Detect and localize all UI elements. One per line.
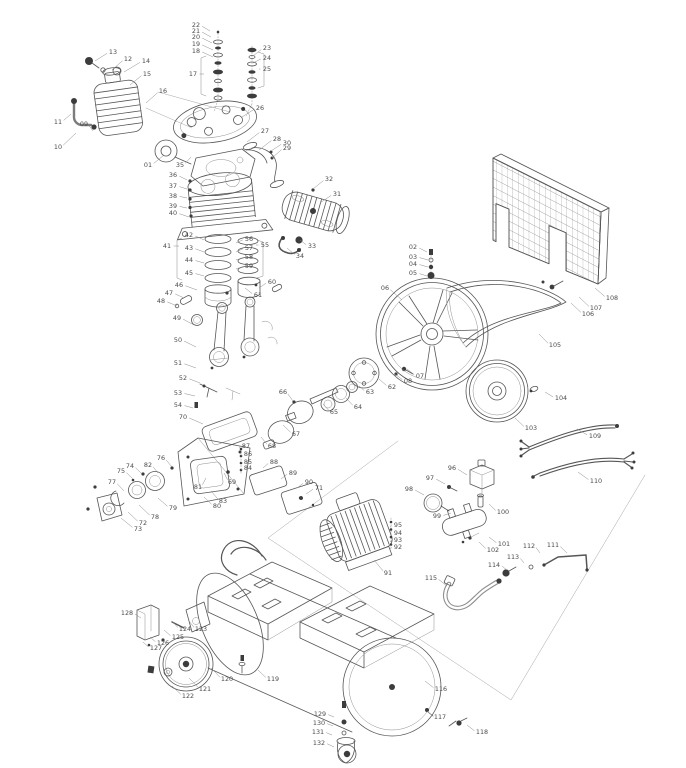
leader-line [180,206,187,208]
part-number-label: 88 [270,458,278,466]
part-number-label: 71 [315,484,323,492]
part-number-label: 121 [199,685,211,693]
valve-stacks [213,30,257,116]
power-cords [520,424,636,479]
leader-line [258,670,266,677]
part-number-label: 36 [169,171,177,179]
leader-line [63,133,76,145]
drive-belt [446,280,566,347]
leader-line [239,447,240,448]
part-number-label: 12 [124,55,132,63]
leader-line [166,460,172,467]
leader-line [578,472,588,480]
leader-line [195,261,204,263]
part-number-label: 132 [313,739,325,747]
part-number-label: 91 [384,569,392,577]
piston-and-rings-left [175,235,231,308]
leader-line [272,150,282,158]
part-number-label: 28 [273,135,281,143]
assembly-reference-lines [146,92,645,700]
leader-line [560,546,567,553]
leader-line [479,542,486,549]
fin-wall [493,154,609,289]
part-number-label: 94 [394,529,402,537]
part-number-label: 131 [312,728,324,736]
leader-line [117,484,124,491]
part-number-label: 113 [507,553,519,561]
part-number-label: 93 [394,536,402,544]
part-number-label: 14 [142,57,150,65]
part-number-label: 07 [416,372,424,380]
part-number-label: 90 [305,478,313,486]
part-number-label: 82 [144,461,152,469]
leader-line [407,369,414,375]
part-number-label: 09 [80,120,88,128]
part-number-label: 17 [189,70,197,78]
part-number-label: 69 [228,478,236,486]
leader-line [202,478,206,485]
unloader-valve [155,140,191,164]
leader-line [154,156,163,163]
part-number-label: 41 [163,242,171,250]
part-number-label: 49 [173,314,181,322]
leader-line [259,141,271,150]
part-number-label: 76 [157,454,165,462]
part-number-label: 51 [174,359,182,367]
part-number-label: 54 [174,401,182,409]
part-number-label: 99 [433,512,441,520]
part-number-label: 16 [159,87,167,95]
leader-line [443,513,451,515]
part-number-label: 61 [254,291,262,299]
leader-line [346,398,353,405]
leader-line [167,302,177,306]
leader-line [545,392,553,397]
leader-line [189,418,203,424]
cylinder-block [171,168,273,240]
crankshaft [253,358,413,450]
part-number-label: 116 [435,685,447,693]
part-number-label: 110 [590,477,602,485]
leader-line [135,614,141,618]
part-number-label: 57 [245,244,253,252]
part-number-label: 128 [121,609,133,617]
leader-line [439,579,447,586]
part-number-label: 01 [144,161,152,169]
leader-line [195,274,204,276]
part-number-label: 123 [195,625,207,633]
leader-line [146,93,158,103]
part-number-label: 05 [409,269,417,277]
part-number-label: 115 [425,574,437,582]
diagram-canvas: 0102030405060708091011121314151617181920… [0,0,686,768]
leader-line [253,59,261,63]
part-number-label: 75 [117,467,125,475]
part-number-label: 35 [176,161,184,169]
part-number-label: 119 [267,675,279,683]
part-number-label: 58 [245,253,253,261]
part-number-label: 63 [366,388,374,396]
leader-line [520,558,524,563]
leader-line [202,45,213,50]
part-number-label: 44 [185,256,193,264]
part-number-label: 46 [175,281,183,289]
part-number-label: 26 [256,104,264,112]
head-gasket [191,149,255,186]
part-number-label: 64 [354,403,362,411]
part-number-label: 53 [174,389,182,397]
leader-line [283,425,291,432]
leader-line [121,518,132,527]
leader-line [124,62,140,72]
part-number-label: 56 [245,235,253,243]
leader-line [415,490,424,495]
flywheel [376,249,488,390]
leader-line [419,274,427,276]
part-number-label: 66 [279,388,287,396]
part-number-label: 95 [394,521,402,529]
leader-line [577,429,587,435]
leader-line [179,214,189,217]
part-number-label: 23 [263,44,271,52]
part-number-label: 124 [179,625,191,633]
part-number-label: 37 [169,182,177,190]
part-number-label: 18 [192,47,200,55]
part-number-label: 122 [182,692,194,700]
connecting-rods [192,297,278,408]
leader-line [158,498,168,506]
part-number-label: 32 [325,175,333,183]
exploded-view-drawing: 0102030405060708091011121314151617181920… [0,0,686,768]
part-number-label: 50 [174,336,182,344]
part-number-label: 125 [172,633,184,641]
part-number-label: 65 [330,408,338,416]
part-number-label: 30 [283,139,291,147]
leader-line [179,176,187,180]
leader-line [247,133,259,142]
leader-line [202,38,212,43]
leader-line [374,560,383,571]
part-number-label: 60 [268,278,276,286]
leader-line [379,379,386,385]
leader-line [425,681,433,688]
part-number-label: 77 [108,478,116,486]
part-number-label: 86 [244,450,252,458]
leader-line [139,505,150,515]
leader-line [184,406,193,408]
leader-line [245,288,252,294]
flex-hose [444,575,502,608]
leader-line [189,379,200,383]
part-number-label: 114 [488,561,500,569]
part-number-label: 70 [179,413,187,421]
leader-line [436,479,445,484]
leader-line [195,249,204,252]
part-number-label: 47 [165,289,173,297]
electric-motor [310,486,397,576]
part-number-label: 45 [185,269,193,277]
leader-line [306,489,313,494]
leader-line [126,473,133,479]
leader-line [184,394,195,396]
part-number-label: 130 [313,719,325,727]
leader-line [327,744,334,747]
part-number-label: 111 [547,541,559,549]
leader-line [143,642,148,647]
leader-line [515,418,524,426]
part-number-label: 92 [394,543,402,551]
mounting-platform [208,562,434,668]
part-number-label: 96 [448,464,456,472]
exhaust-elbow [242,141,284,189]
part-number-label: 25 [263,65,271,73]
part-number-label: 107 [590,304,602,312]
leader-line [263,463,268,468]
part-number-label: 97 [426,474,434,482]
part-number-label: 101 [498,540,510,548]
leader-line [595,288,605,296]
part-number-label: 118 [476,728,488,736]
leader-line [184,341,196,347]
shaft-seals-and-cover [86,466,173,521]
leader-line [128,512,138,521]
part-number-label: 59 [245,262,253,270]
leader-line [135,468,142,474]
part-number-label: 74 [126,462,134,470]
part-number-label: 127 [150,644,162,652]
leader-line [185,286,197,290]
part-number-label: 102 [487,546,499,554]
leader-line [184,364,196,368]
part-number-label: 129 [314,710,326,718]
leader-line [271,144,281,151]
part-number-label: 62 [388,383,396,391]
leader-line [95,53,107,61]
part-number-label: 13 [109,48,117,56]
part-number-label: 38 [169,192,177,200]
part-number-label: 68 [268,442,276,450]
leader-line [489,504,496,511]
leader-line [211,491,218,499]
part-number-label: 34 [296,252,304,260]
part-number-label: 27 [261,127,269,135]
pressure-switch-assembly [424,460,494,544]
leader-line [202,32,211,37]
leader-line [419,248,427,252]
part-number-label: 103 [525,424,537,432]
part-number-label: 04 [409,260,417,268]
leader-line [458,469,467,475]
leader-line [419,265,428,267]
part-number-label: 117 [434,713,446,721]
part-number-label: 108 [606,294,618,302]
leader-line [64,114,71,120]
part-number-label: 105 [549,341,561,349]
part-number-label: 06 [381,284,389,292]
part-number-label: 24 [263,54,271,62]
part-number-label: 08 [404,377,412,385]
leader-line [185,157,191,163]
part-number-label: 42 [185,231,193,239]
part-number-label: 67 [292,430,300,438]
part-number-label: 31 [333,190,341,198]
part-number-label: 10 [54,143,62,151]
leader-line [179,187,187,189]
leader-line [467,725,474,731]
part-number-label: 43 [185,244,193,252]
part-number-label: 02 [409,243,417,251]
leader-line [112,61,123,70]
leader-line [579,297,589,306]
part-number-label: 40 [169,209,177,217]
leader-line [539,334,548,343]
part-number-label: 98 [405,485,413,493]
leader-line [328,715,334,717]
leader-line [175,294,184,298]
caster-wheel [337,701,356,763]
part-number-label: 55 [261,241,269,249]
part-number-label: 78 [151,513,159,521]
part-number-label: 15 [143,70,151,78]
leader-line [164,630,170,636]
part-number-label: 73 [134,525,142,533]
cylinder-head [170,95,260,149]
part-number-label: 112 [523,542,535,550]
part-number-label: 33 [308,242,316,250]
part-number-label: 22 [192,21,200,29]
leader-line [419,258,428,260]
leader-line [489,537,496,543]
leader-line [327,724,333,726]
part-number-label: 100 [497,508,509,516]
leader-line [183,319,194,325]
leader-line [202,52,213,57]
leader-line [536,548,540,553]
leader-line [288,394,293,401]
leader-line [502,566,507,570]
leader-line [313,181,323,189]
leader-line [326,733,332,735]
motor-pulley [466,360,539,422]
leader-line [153,467,158,473]
leader-line [202,26,210,31]
part-number-label: 85 [244,458,252,466]
part-number-label: 109 [589,432,601,440]
part-number-label: 81 [194,483,202,491]
air-tank [183,541,467,736]
part-number-label: 104 [555,394,567,402]
leader-line [150,637,155,642]
part-number-label: 11 [54,118,62,126]
part-number-label: 19 [192,40,200,48]
leader-line [571,303,581,312]
leader-line [180,196,187,198]
part-number-label: 120 [221,675,233,683]
part-number-label: 89 [289,469,297,477]
part-number-label: 79 [169,504,177,512]
part-number-label: 83 [219,497,227,505]
part-number-label: 87 [242,442,250,450]
part-number-label: 52 [179,374,187,382]
leader-line [427,711,432,716]
part-number-label: 48 [157,297,165,305]
